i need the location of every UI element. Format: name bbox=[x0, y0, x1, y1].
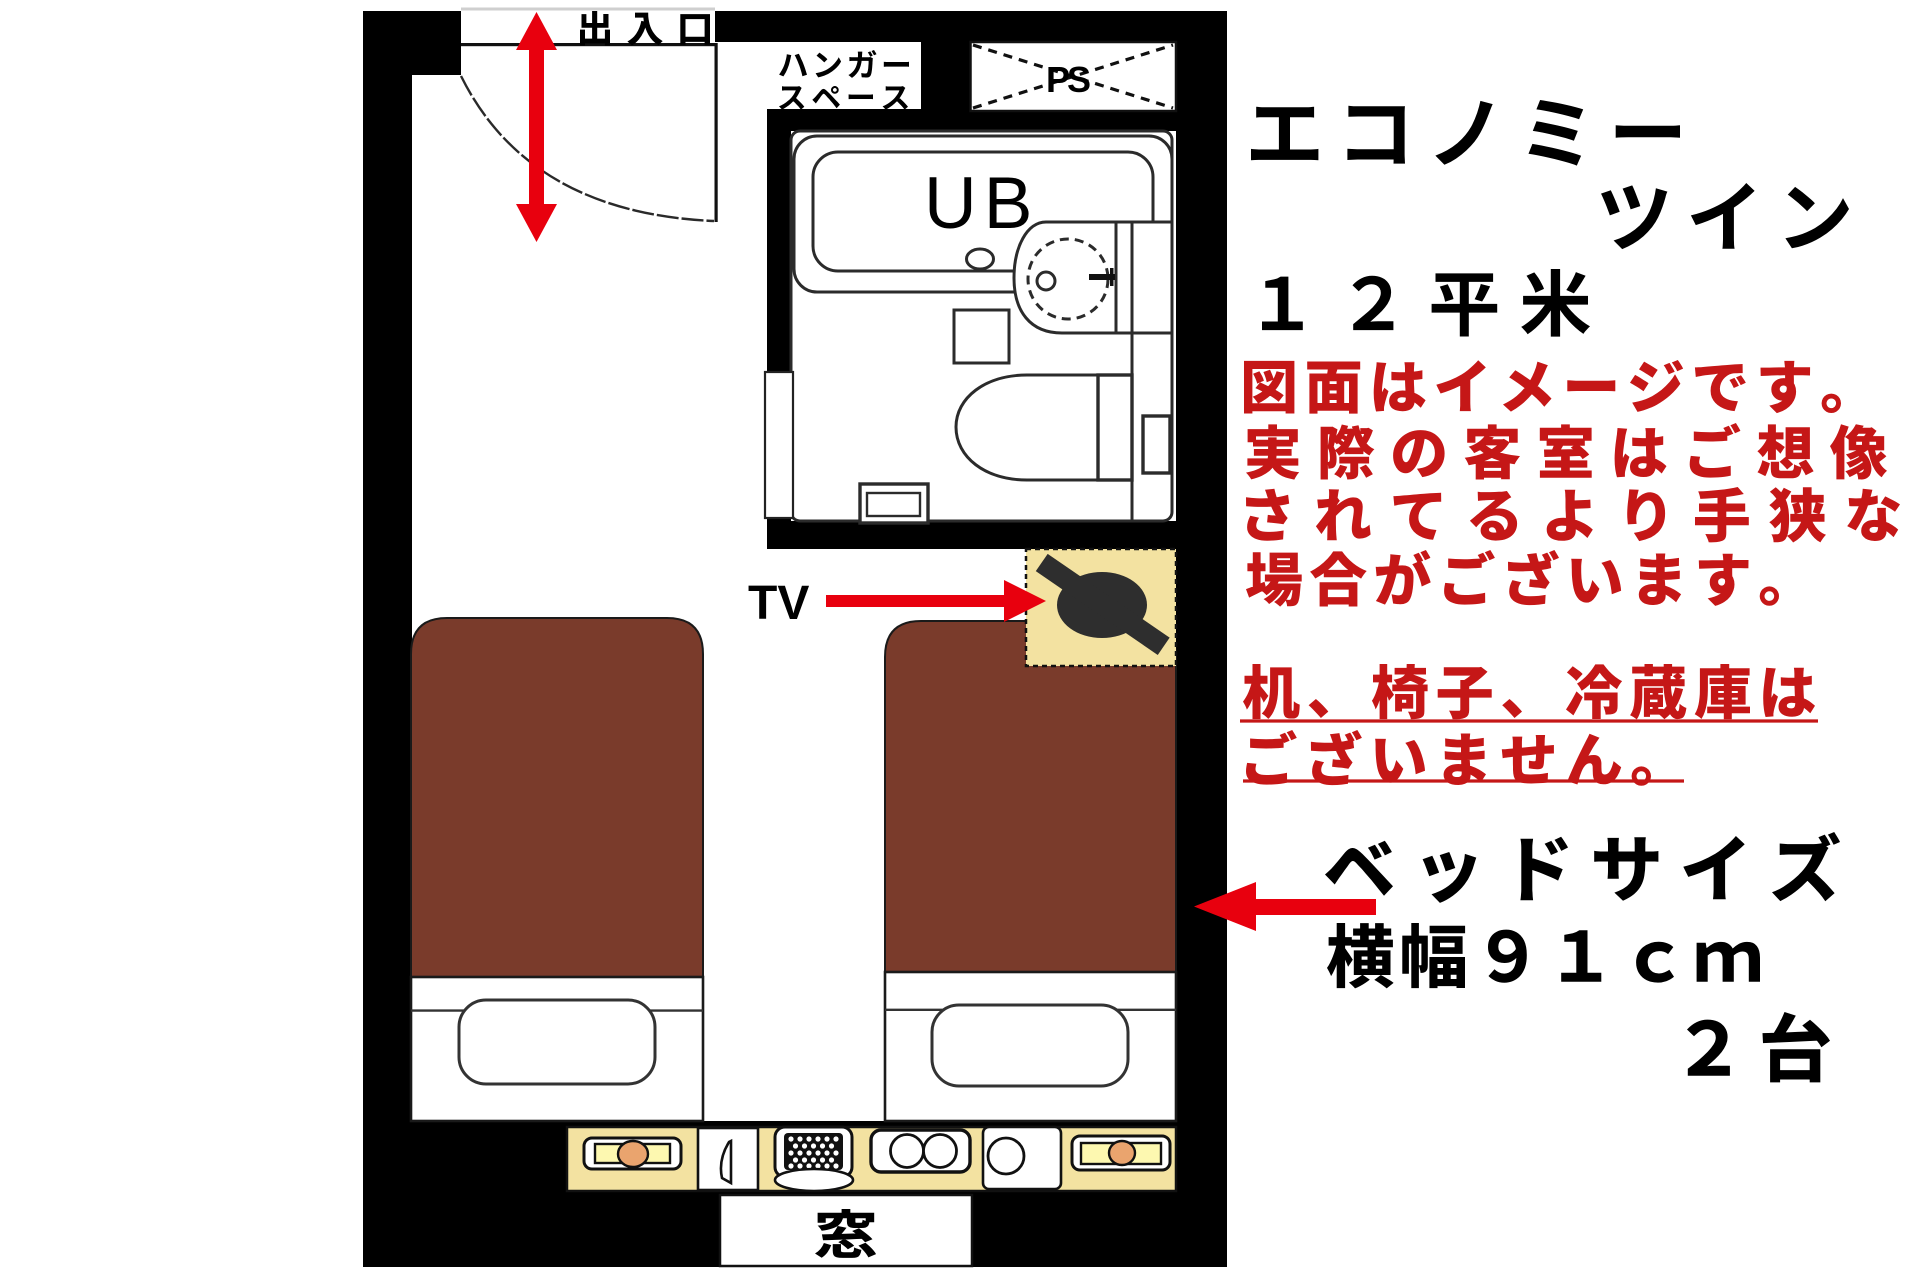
svg-text:PS: PS bbox=[1046, 59, 1090, 100]
svg-text:TV: TV bbox=[748, 577, 809, 630]
svg-text:UB: UB bbox=[924, 163, 1039, 244]
